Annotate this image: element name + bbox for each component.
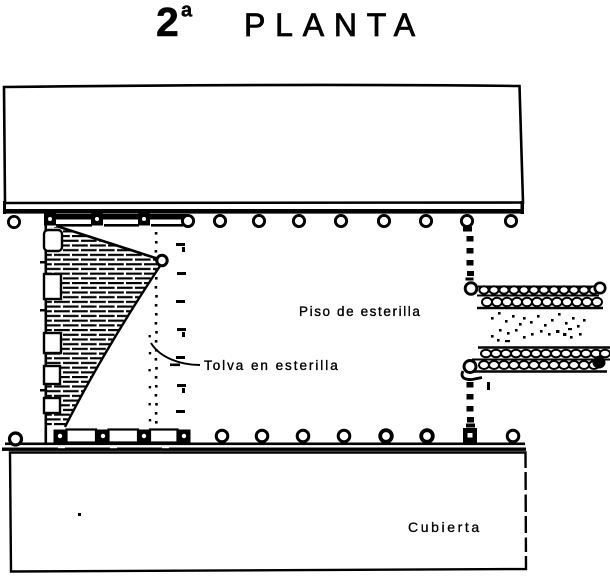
svg-text:a: a [181,0,193,22]
svg-text:Tolva en esterilla: Tolva en esterilla [204,358,340,373]
svg-text:Cubierta: Cubierta [408,519,482,535]
svg-text:PLANTA: PLANTA [244,7,425,43]
svg-text:Piso de esterilla: Piso de esterilla [299,304,422,319]
svg-text:2: 2 [156,0,179,45]
